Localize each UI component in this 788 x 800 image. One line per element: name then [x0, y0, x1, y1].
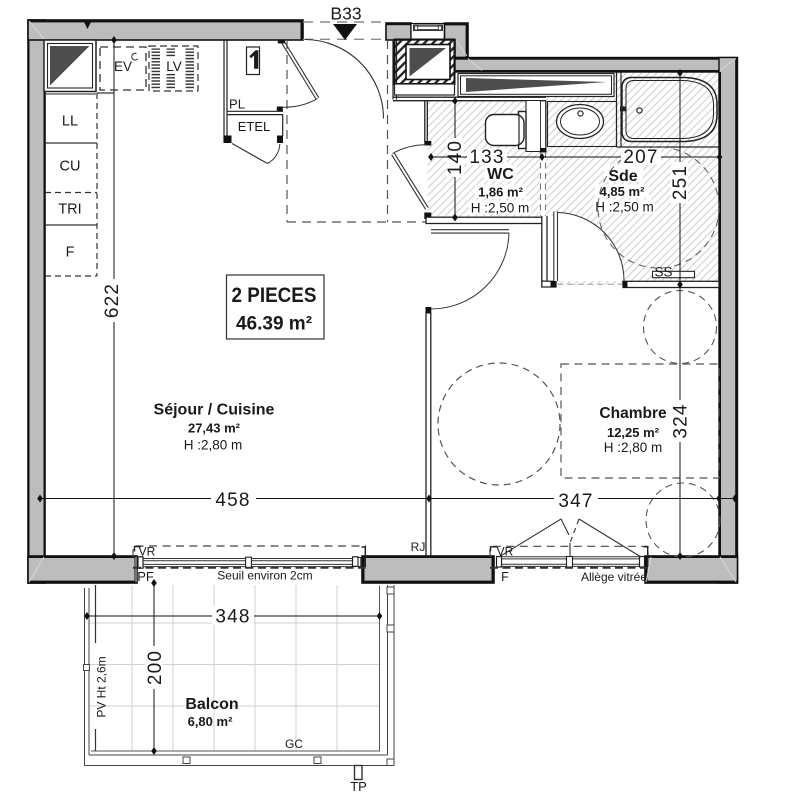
svg-text:SS: SS [654, 265, 672, 280]
svg-text:ETEL: ETEL [238, 119, 271, 134]
svg-text:PV Ht 2,6m: PV Ht 2,6m [95, 656, 109, 717]
svg-text:EV: EV [114, 59, 132, 74]
svg-text:6,80 m²: 6,80 m² [188, 714, 233, 729]
svg-text:Chambre: Chambre [599, 405, 667, 422]
svg-text:F: F [501, 570, 509, 584]
svg-text:CU: CU [60, 159, 81, 175]
svg-text:F: F [66, 245, 75, 261]
svg-text:B33: B33 [330, 4, 361, 24]
svg-text:H :2,80 m: H :2,80 m [604, 440, 663, 455]
svg-text:TP: TP [350, 779, 367, 794]
svg-text:200: 200 [145, 650, 166, 685]
svg-text:324: 324 [671, 403, 692, 438]
svg-text:WC: WC [487, 166, 514, 183]
svg-text:Allège vitrée: Allège vitrée [581, 570, 647, 584]
svg-text:458: 458 [215, 490, 250, 511]
svg-text:Balcon: Balcon [185, 696, 238, 713]
svg-text:347: 347 [558, 491, 593, 512]
svg-text:348: 348 [215, 607, 250, 628]
svg-text:Seuil environ 2cm: Seuil environ 2cm [217, 569, 312, 583]
svg-text:133: 133 [469, 147, 504, 168]
svg-text:251: 251 [670, 165, 691, 200]
svg-text:2 PIECES: 2 PIECES [232, 284, 317, 307]
svg-text:622: 622 [102, 283, 123, 318]
svg-text:207: 207 [623, 147, 658, 168]
svg-text:RJ: RJ [411, 540, 426, 554]
svg-text:H :2,50 m: H :2,50 m [595, 200, 654, 215]
svg-text:PF: PF [137, 569, 154, 584]
svg-text:H :2,50 m: H :2,50 m [471, 201, 530, 216]
svg-text:27,43 m²: 27,43 m² [188, 421, 241, 436]
svg-text:Séjour / Cuisine: Séjour / Cuisine [154, 402, 275, 419]
svg-text:GC: GC [285, 737, 303, 751]
svg-text:PL: PL [229, 97, 245, 112]
svg-text:Sde: Sde [608, 168, 637, 185]
svg-text:H :2,80 m: H :2,80 m [184, 438, 243, 453]
svg-text:46.39 m²: 46.39 m² [236, 314, 312, 335]
svg-text:VR: VR [139, 545, 156, 559]
svg-text:1,86 m²: 1,86 m² [478, 185, 523, 200]
svg-text:12,25 m²: 12,25 m² [607, 425, 660, 440]
svg-text:TRI: TRI [58, 202, 81, 218]
svg-text:LV: LV [166, 59, 182, 74]
svg-text:4,85 m²: 4,85 m² [600, 184, 645, 199]
svg-text:LL: LL [62, 114, 78, 130]
